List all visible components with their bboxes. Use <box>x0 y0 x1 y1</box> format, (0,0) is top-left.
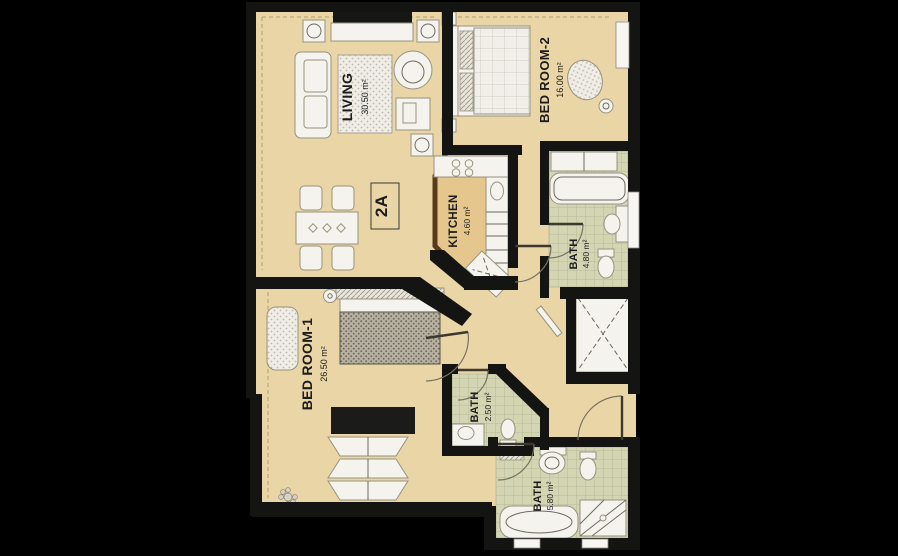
dining-chair-icon <box>300 246 322 270</box>
room-label-bath1-name: BATH <box>568 239 580 270</box>
room-label-living-area: 30.50 m² <box>360 79 370 115</box>
pillow <box>460 73 473 111</box>
room-label-living-name: LIVING <box>339 73 355 121</box>
sink-icon <box>539 452 565 474</box>
unit-label: 2A <box>372 195 391 217</box>
room-label-bath1-area: 4.80 m² <box>581 239 591 268</box>
shower-drain <box>600 515 606 521</box>
toilet-icon <box>501 419 515 439</box>
window-icon <box>616 22 629 68</box>
stove-burner-icon <box>465 169 473 177</box>
chaise-lounge-icon <box>267 307 298 370</box>
room-label-kitchen-area: 4.60 m² <box>462 206 472 235</box>
speaker-icon <box>411 134 433 156</box>
room-label-bedroom2-area: 16.00 m² <box>555 62 565 98</box>
room-label-bath2-name: BATH <box>469 392 481 423</box>
stove-burner-icon <box>465 160 473 168</box>
window-icon <box>582 539 608 548</box>
room-label-bath3-name: BATH <box>532 481 544 512</box>
bath-3 <box>496 447 628 538</box>
room-label-bath3-area: 5.80 m² <box>545 481 555 510</box>
bed-icon <box>340 312 440 364</box>
pillow <box>460 31 473 69</box>
dining-chair-icon <box>332 246 354 270</box>
speaker-icon <box>303 20 325 42</box>
toilet-icon <box>580 458 596 480</box>
tv-bench <box>331 23 413 41</box>
sink-icon <box>604 214 620 234</box>
floor-plan: LIVING 30.50 m² BED ROOM-2 16.00 m² KITC… <box>0 0 898 556</box>
bedside-lamp-icon <box>324 290 337 303</box>
room-label-bath2-area: 2.50 m² <box>483 392 493 421</box>
sink-icon <box>458 427 474 440</box>
kitchen-sink-icon <box>491 182 504 200</box>
window-icon <box>514 539 540 548</box>
stove-burner-icon <box>452 169 460 177</box>
dining-chair-icon <box>300 186 322 210</box>
room-label-bedroom2-name: BED ROOM-2 <box>537 37 552 123</box>
room-label-bedroom1-name: BED ROOM-1 <box>299 318 315 410</box>
floor-plan-canvas: LIVING 30.50 m² BED ROOM-2 16.00 m² KITC… <box>0 0 898 556</box>
built-in-closet <box>576 296 630 372</box>
side-table-icon <box>599 99 613 113</box>
speaker-icon <box>417 20 439 42</box>
toilet-icon <box>598 256 614 278</box>
window-icon <box>628 192 639 248</box>
bed-blanket <box>474 28 530 114</box>
room-label-bedroom1-area: 26.50 m² <box>319 346 329 382</box>
stove-burner-icon <box>452 160 460 168</box>
wardrobe <box>331 407 415 434</box>
dining-chair-icon <box>332 186 354 210</box>
bathtub-icon <box>550 173 629 204</box>
room-label-kitchen-name: KITCHEN <box>448 194 460 247</box>
